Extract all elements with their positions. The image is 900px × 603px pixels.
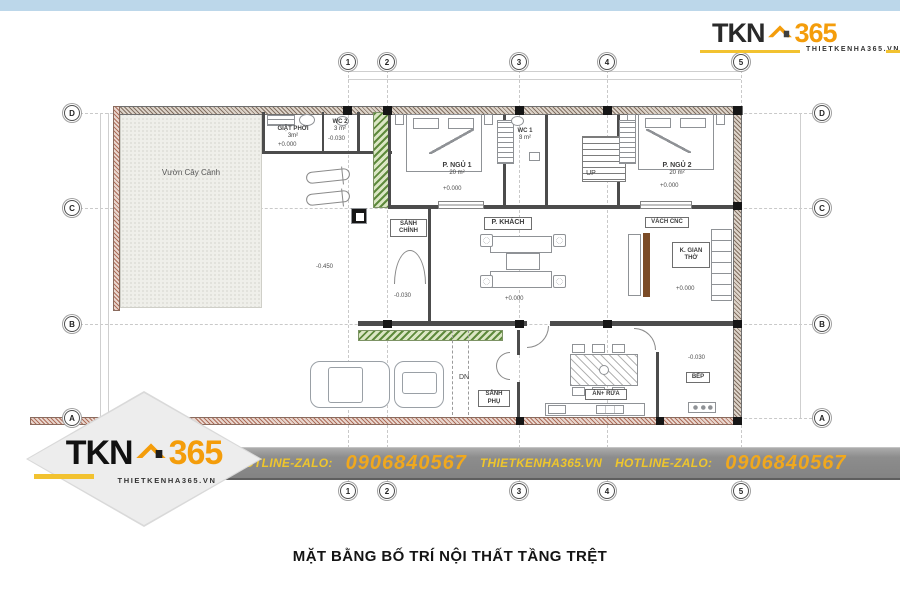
hotline-phone-1: 0906840567 bbox=[346, 452, 467, 475]
dining-chair bbox=[572, 387, 585, 396]
grid-bubble-right-C: C bbox=[814, 200, 830, 216]
dim-line-left-1 bbox=[100, 113, 101, 418]
grid-bubble-top-4: 4 bbox=[599, 54, 615, 70]
grid-bubble-right-B: B bbox=[814, 316, 830, 332]
grid-label: 3 bbox=[517, 487, 521, 496]
nightstand bbox=[484, 114, 493, 125]
wc1-name: WC 1 bbox=[518, 128, 533, 134]
column bbox=[516, 417, 524, 425]
bed1-elevation: +0.000 bbox=[443, 186, 462, 192]
dim-line-top-1 bbox=[348, 71, 741, 72]
column bbox=[383, 320, 392, 328]
door-main-hall bbox=[394, 250, 410, 284]
grid-label: B bbox=[69, 320, 75, 329]
laundry-area: 3m² bbox=[270, 133, 316, 140]
grid-bubble-bottom-2: 2 bbox=[379, 483, 395, 499]
column bbox=[733, 106, 742, 115]
washing-machine bbox=[267, 115, 295, 126]
logo-bottom-left: TKN 365 bbox=[66, 433, 223, 473]
grid-bubble-left-B: B bbox=[64, 316, 80, 332]
laundry-elevation: +0.000 bbox=[278, 142, 297, 148]
column bbox=[733, 202, 742, 210]
banner-site: THIETKENHA365.VN bbox=[480, 456, 602, 470]
pillow bbox=[680, 118, 706, 129]
logo-underline bbox=[34, 474, 94, 479]
kitchen-elevation: -0.030 bbox=[688, 355, 705, 361]
dining-centerpiece bbox=[599, 365, 609, 375]
main-hall-label: SẢNH CHÍNH bbox=[390, 219, 427, 237]
car-cabin bbox=[402, 372, 437, 394]
kitchen-label: BẾP bbox=[686, 372, 710, 383]
wall bbox=[428, 208, 431, 324]
yard-elevation: -0.450 bbox=[316, 264, 333, 270]
wc1-label: WC 1 3 m² bbox=[508, 128, 542, 142]
blanket-fold bbox=[646, 129, 690, 153]
dim-line-left-2 bbox=[108, 113, 109, 418]
house-icon bbox=[135, 438, 167, 470]
wc2-label: WC 2 3 m² bbox=[325, 119, 355, 133]
column bbox=[603, 106, 612, 115]
laundry-name: GIẶT PHƠI bbox=[277, 126, 308, 132]
door-kitchen bbox=[634, 328, 656, 350]
floor-plan-page: TKN 365 THIETKENHA365.VN 1 2 3 4 5 1 2 3… bbox=[0, 0, 900, 603]
grid-label: 2 bbox=[385, 487, 389, 496]
logo-diamond: TKN 365 THIETKENHA365.VN bbox=[28, 393, 260, 525]
worship-label: K. GIAN THỜ bbox=[672, 242, 710, 268]
wall-right bbox=[733, 106, 742, 424]
column bbox=[733, 417, 742, 425]
wall bbox=[262, 112, 265, 154]
pillow bbox=[413, 118, 439, 129]
grid-bubble-top-1: 1 bbox=[340, 54, 356, 70]
wc2-area: 3 m² bbox=[325, 126, 355, 133]
grid-label: C bbox=[819, 204, 825, 213]
grid-bubble-left-A: A bbox=[64, 410, 80, 426]
living-label: P. KHÁCH bbox=[484, 217, 532, 230]
blanket-fold bbox=[429, 129, 473, 154]
wc1-area: 3 m² bbox=[508, 135, 542, 142]
pillow bbox=[448, 118, 474, 129]
garden-label: Vườn Cây Cảnh bbox=[150, 168, 232, 178]
stairs-up-label: UP bbox=[580, 170, 602, 178]
window-bed1 bbox=[438, 201, 484, 209]
grid-label: A bbox=[69, 414, 75, 423]
wardrobe-bed2 bbox=[619, 120, 636, 164]
cnc-label: VÁCH CNC bbox=[645, 217, 689, 228]
grid-label: B bbox=[819, 320, 825, 329]
dining-chair bbox=[572, 344, 585, 353]
car-1 bbox=[310, 361, 390, 408]
nightstand bbox=[716, 114, 725, 125]
wall bbox=[517, 330, 520, 355]
grid-label: 2 bbox=[385, 58, 389, 67]
dining-chair bbox=[592, 344, 605, 353]
column bbox=[733, 320, 742, 328]
wall-garden-left bbox=[113, 106, 120, 311]
wall bbox=[322, 112, 324, 151]
side-table bbox=[553, 234, 566, 247]
ramp-line bbox=[468, 330, 469, 415]
grid-bubble-right-A: A bbox=[814, 410, 830, 426]
pillow bbox=[645, 118, 671, 129]
hotline-label-2: HOTLINE-ZALO: bbox=[615, 456, 712, 470]
side-table bbox=[480, 275, 493, 288]
car-2 bbox=[394, 361, 444, 408]
planter-box bbox=[351, 208, 367, 224]
grid-bubble-bottom-3: 3 bbox=[511, 483, 527, 499]
handlebar bbox=[341, 188, 344, 206]
bed2-elevation: +0.000 bbox=[660, 183, 679, 189]
main-hall-elevation: -0.030 bbox=[394, 293, 411, 299]
grid-bubble-top-5: 5 bbox=[733, 54, 749, 70]
handlebar bbox=[341, 166, 344, 184]
garden-area bbox=[120, 112, 262, 308]
dining-chair bbox=[612, 344, 625, 353]
nightstand bbox=[395, 114, 404, 125]
ramp-line bbox=[452, 330, 453, 415]
logo-tkn-text: TKN bbox=[66, 434, 133, 473]
grid-bubble-top-3: 3 bbox=[511, 54, 527, 70]
grid-bubble-bottom-4: 4 bbox=[599, 483, 615, 499]
door-main-hall bbox=[410, 250, 426, 284]
wall bbox=[388, 115, 391, 208]
grid-label: 5 bbox=[739, 487, 743, 496]
bed1-area: 20 m² bbox=[428, 170, 486, 177]
living-elevation: +0.000 bbox=[505, 296, 524, 302]
column bbox=[515, 106, 524, 115]
grid-label: 4 bbox=[605, 487, 609, 496]
grid-bubble-left-D: D bbox=[64, 105, 80, 121]
logo-rule-left bbox=[700, 50, 800, 53]
door-side-hall bbox=[496, 352, 510, 366]
coffee-table bbox=[506, 253, 540, 270]
grid-bubble-right-D: D bbox=[814, 105, 830, 121]
grid-label: 4 bbox=[605, 58, 609, 67]
hotline-phone-2: 0906840567 bbox=[725, 452, 846, 475]
logo-domain-text: THIETKENHA365.VN bbox=[118, 476, 217, 485]
grid-label: 3 bbox=[517, 58, 521, 67]
wc2-name: WC 2 bbox=[333, 119, 348, 125]
hotline-banner: HOTLINE-ZALO: 0906840567 THIETKENHA365.V… bbox=[182, 447, 900, 480]
dim-line-top-2 bbox=[348, 79, 741, 80]
sofa bbox=[490, 236, 552, 253]
wall bbox=[550, 321, 741, 326]
wc2-elevation: -0.030 bbox=[328, 136, 345, 142]
dining-label: ĂN+ RỬA bbox=[585, 389, 627, 400]
column bbox=[603, 320, 612, 328]
planter-inner bbox=[355, 212, 365, 222]
hedge-horizontal bbox=[358, 330, 503, 341]
bed2-name: P. NGỦ 2 bbox=[662, 162, 691, 169]
door-side-hall bbox=[496, 366, 510, 380]
logo-365-text: 365 bbox=[795, 18, 837, 49]
side-hall-label: SẢNH PHỤ bbox=[478, 390, 510, 407]
grid-label: D bbox=[69, 109, 75, 118]
window-bed2 bbox=[640, 201, 692, 209]
dim-line-right bbox=[800, 113, 801, 418]
grid-label: 1 bbox=[346, 487, 350, 496]
logo-top-right: TKN 365 bbox=[712, 13, 837, 49]
grid-bubble-top-2: 2 bbox=[379, 54, 395, 70]
motorbike bbox=[305, 190, 350, 207]
grid-label: A bbox=[819, 414, 825, 423]
column bbox=[383, 106, 392, 115]
grid-label: C bbox=[69, 204, 75, 213]
motorbike bbox=[305, 168, 350, 185]
cnc-shelf bbox=[628, 234, 641, 296]
side-table bbox=[480, 234, 493, 247]
column bbox=[343, 106, 352, 115]
wc1-sink bbox=[529, 152, 540, 161]
stove bbox=[688, 402, 716, 413]
grid-bubble-bottom-1: 1 bbox=[340, 483, 356, 499]
cnc-panel bbox=[643, 233, 650, 297]
house-icon bbox=[767, 21, 793, 47]
wall bbox=[357, 112, 360, 154]
laundry-label: GIẶT PHƠI 3m² bbox=[270, 126, 316, 140]
altar-cabinet bbox=[711, 229, 732, 301]
logo-tkn-text: TKN bbox=[712, 18, 765, 49]
bed2-label: P. NGỦ 2 20 m² bbox=[648, 162, 706, 178]
bed1-name: P. NGỦ 1 bbox=[442, 162, 471, 169]
car-cabin bbox=[328, 367, 363, 402]
grid-label: 5 bbox=[739, 58, 743, 67]
wall bbox=[545, 115, 548, 205]
grid-label: D bbox=[819, 109, 825, 118]
logo-rule-right bbox=[886, 50, 900, 53]
toilet-wc1 bbox=[511, 116, 524, 126]
hedge-vertical bbox=[373, 112, 389, 208]
wall bbox=[517, 382, 520, 418]
sofa bbox=[490, 271, 552, 288]
logo-365-text: 365 bbox=[169, 434, 223, 473]
grid-label: 1 bbox=[346, 58, 350, 67]
column bbox=[656, 417, 664, 425]
stairs-dn-label: DN bbox=[452, 374, 476, 382]
bed2-area: 20 m² bbox=[648, 170, 706, 177]
grid-bubble-left-C: C bbox=[64, 200, 80, 216]
laundry-sink bbox=[299, 114, 315, 126]
appliance bbox=[548, 405, 566, 414]
grid-bubble-bottom-5: 5 bbox=[733, 483, 749, 499]
side-table bbox=[553, 275, 566, 288]
sink-unit bbox=[596, 405, 624, 414]
page-title: MẶT BẰNG BỐ TRÍ NỘI THẤT TẦNG TRỆT bbox=[0, 548, 900, 565]
bed1-label: P. NGỦ 1 20 m² bbox=[428, 162, 486, 178]
door-entry bbox=[527, 326, 549, 348]
column bbox=[515, 320, 524, 328]
top-bar bbox=[0, 0, 900, 11]
wall bbox=[656, 352, 659, 418]
worship-elevation: +0.000 bbox=[676, 286, 695, 292]
